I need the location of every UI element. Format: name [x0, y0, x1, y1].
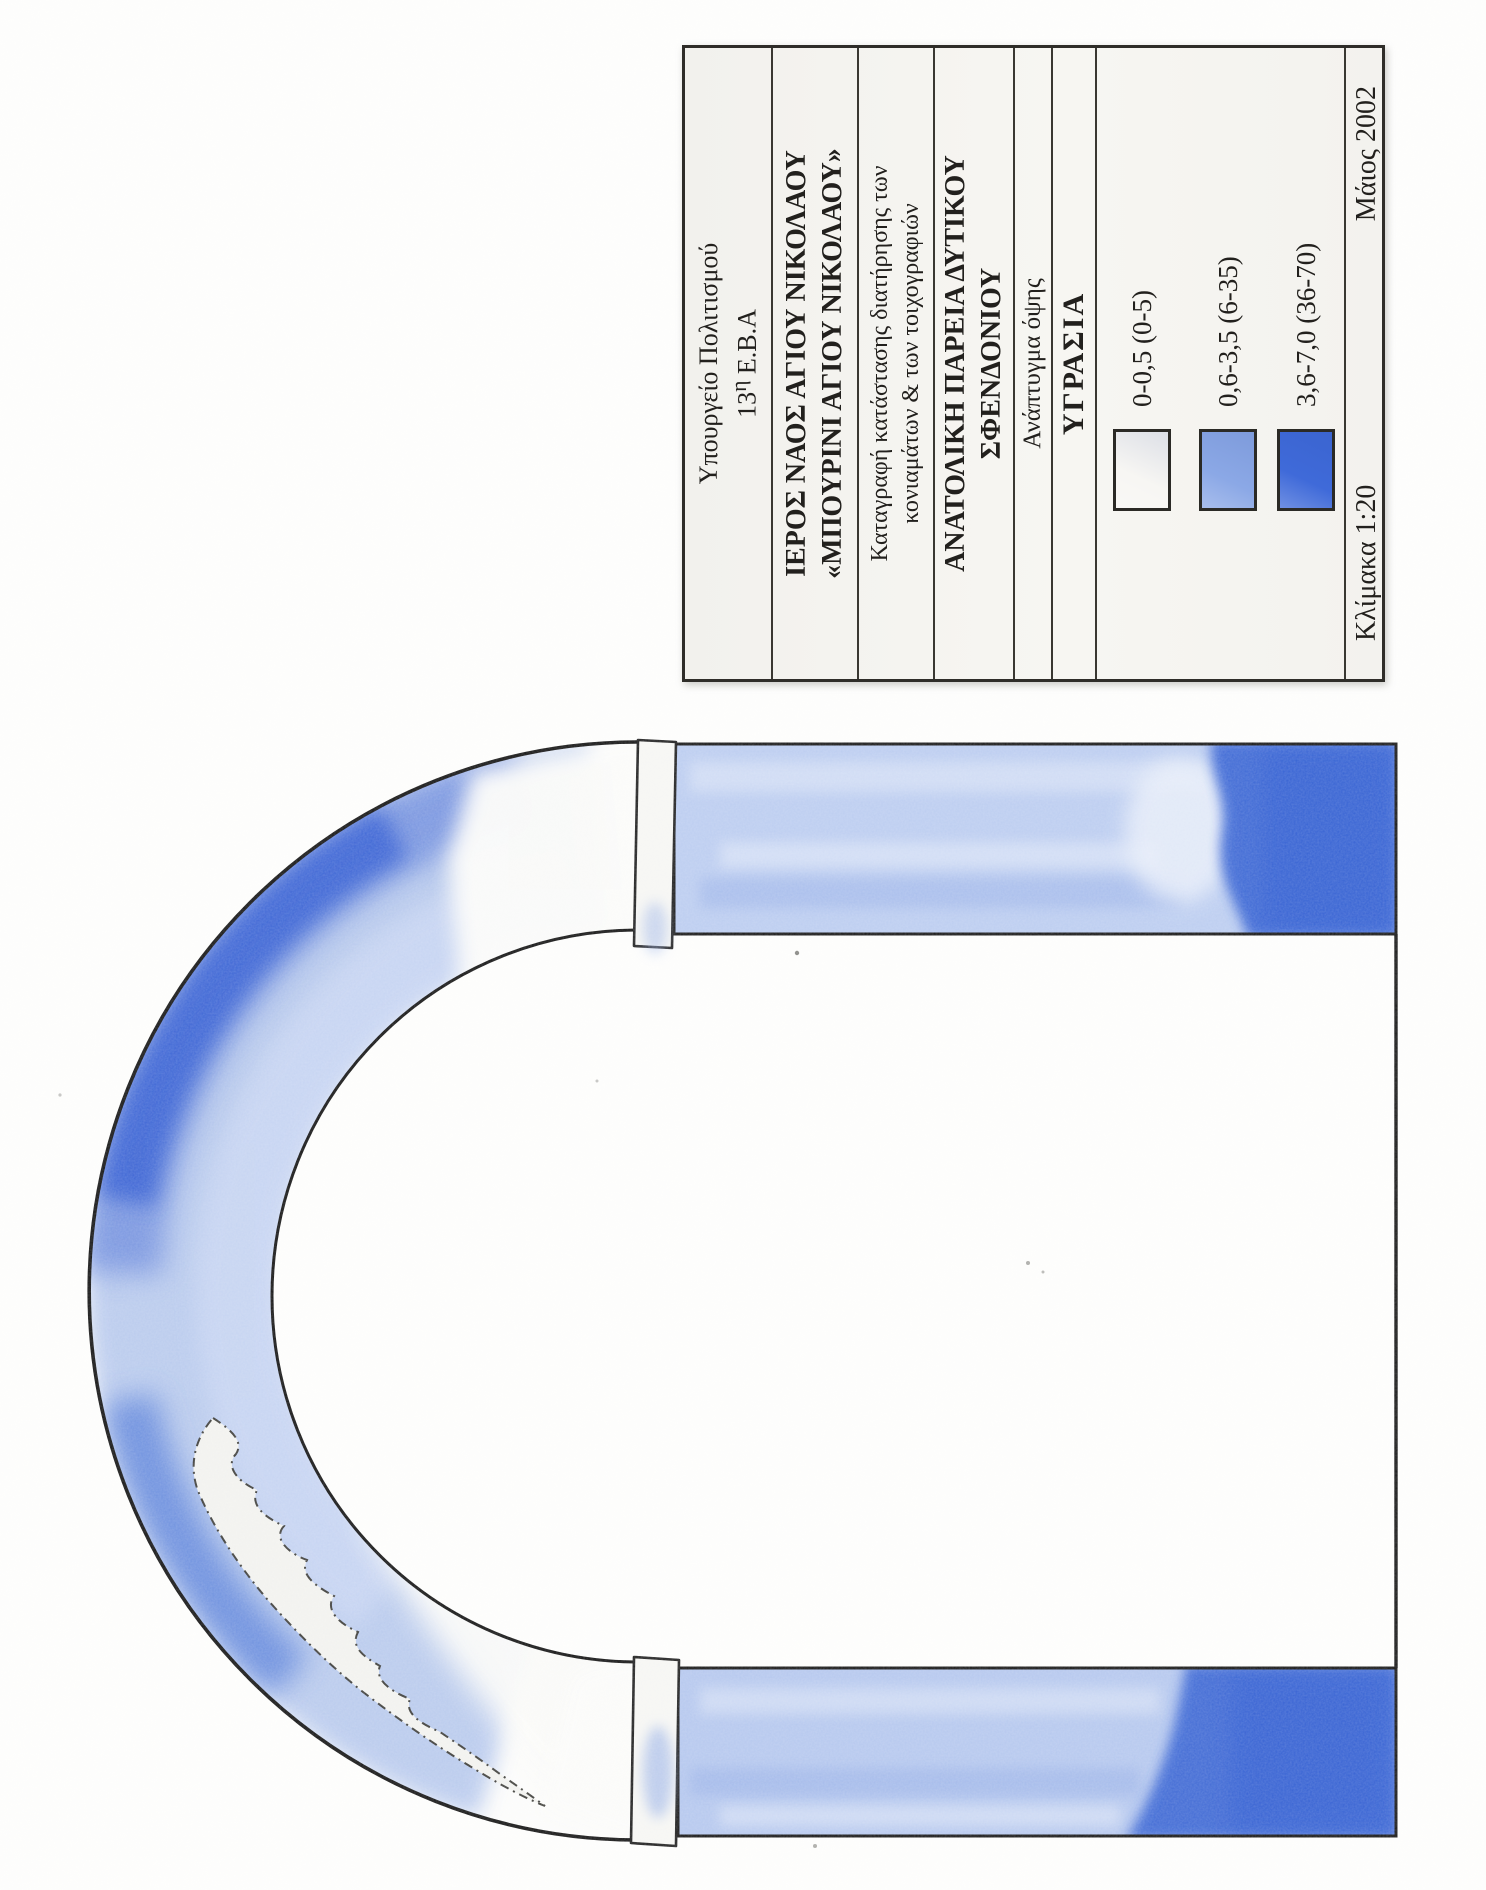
- row-monument: ΙΕΡΟΣ ΝΑΟΣ ΑΓΙΟΥ ΝΙΚΟΛΑΟΥ «ΜΠΟΥΡΙΝΙ ΑΓΙΟ…: [773, 48, 859, 679]
- subject-line2: κονιαμάτων & των τοιχογραφιών: [896, 203, 927, 523]
- row-scale-date: Κλίμακα 1:20 Μάιος 2002: [1346, 48, 1388, 679]
- view-type-label: Ανάπτυγμα όψης: [1017, 278, 1049, 449]
- ephorate-abbrev: Ε.Β.Α: [732, 309, 761, 381]
- row-location: ΑΝΑΤΟΛΙΚΗ ΠΑΡΕΙΑ ΔΥΤΙΚΟΥ ΣΦΕΝΔΟΝΙΟΥ: [935, 48, 1015, 679]
- ephorate-line: 13η Ε.Β.Α: [726, 309, 764, 418]
- legend-entry-low: 0-0,5 (0-5): [1113, 48, 1171, 679]
- legend-label-high: 3,6-7,0 (36-70): [1277, 243, 1335, 407]
- row-map-theme: ΥΓΡΑΣΙΑ: [1053, 48, 1097, 679]
- legend-swatch-medium: [1199, 429, 1257, 511]
- swatch-texture: [1202, 432, 1254, 508]
- subject-line1: Καταγραφή κατάστασης διατήρησης των: [865, 166, 896, 562]
- legend-entry-medium: 0,6-3,5 (6-35): [1199, 48, 1257, 679]
- legend-entry-high: 3,6-7,0 (36-70): [1277, 48, 1335, 679]
- legend-swatch-low: [1113, 429, 1171, 511]
- swatch-texture: [1280, 432, 1332, 508]
- monument-line2: «ΜΠΟΥΡΙΝΙ ΑΓΙΟΥ ΝΙΚΟΛΑΟΥ»: [815, 148, 851, 579]
- ephorate-number: 13: [732, 392, 761, 418]
- scale-label: Κλίμακα 1:20: [1349, 485, 1385, 641]
- legend-label-medium: 0,6-3,5 (6-35): [1199, 256, 1257, 407]
- legend-swatch-high: [1277, 429, 1335, 511]
- legend-label-low: 0-0,5 (0-5): [1113, 290, 1171, 407]
- date-label: Μάιος 2002: [1349, 86, 1385, 221]
- row-organisation: Υπουργείο Πολιτισμού 13η Ε.Β.Α: [685, 48, 773, 679]
- row-view-type: Ανάπτυγμα όψης: [1015, 48, 1053, 679]
- title-block-table: Υπουργείο Πολιτισμού 13η Ε.Β.Α ΙΕΡΟΣ ΝΑΟ…: [682, 45, 1385, 682]
- title-block: Υπουργείο Πολιτισμού 13η Ε.Β.Α ΙΕΡΟΣ ΝΑΟ…: [682, 45, 1385, 682]
- scanned-sheet: { "document": { "kind": "scanned conserv…: [0, 0, 1486, 1890]
- legend: 0-0,5 (0-5) 0,6-3,5 (6-35) 3,6-7,0 (36-7…: [1097, 48, 1346, 679]
- location-line1: ΑΝΑΤΟΛΙΚΗ ΠΑΡΕΙΑ ΔΥΤΙΚΟΥ: [938, 155, 974, 572]
- swatch-texture: [1116, 432, 1168, 508]
- map-theme-label: ΥΓΡΑΣΙΑ: [1055, 292, 1093, 435]
- location-line2: ΣΦΕΝΔΟΝΙΟΥ: [974, 268, 1010, 459]
- ministry-line: Υπουργείο Πολιτισμού: [692, 243, 725, 485]
- ephorate-ordinal-sup: η: [727, 381, 751, 392]
- monument-line1: ΙΕΡΟΣ ΝΑΟΣ ΑΓΙΟΥ ΝΙΚΟΛΑΟΥ: [779, 150, 815, 577]
- row-survey-subject: Καταγραφή κατάστασης διατήρησης των κονι…: [859, 48, 935, 679]
